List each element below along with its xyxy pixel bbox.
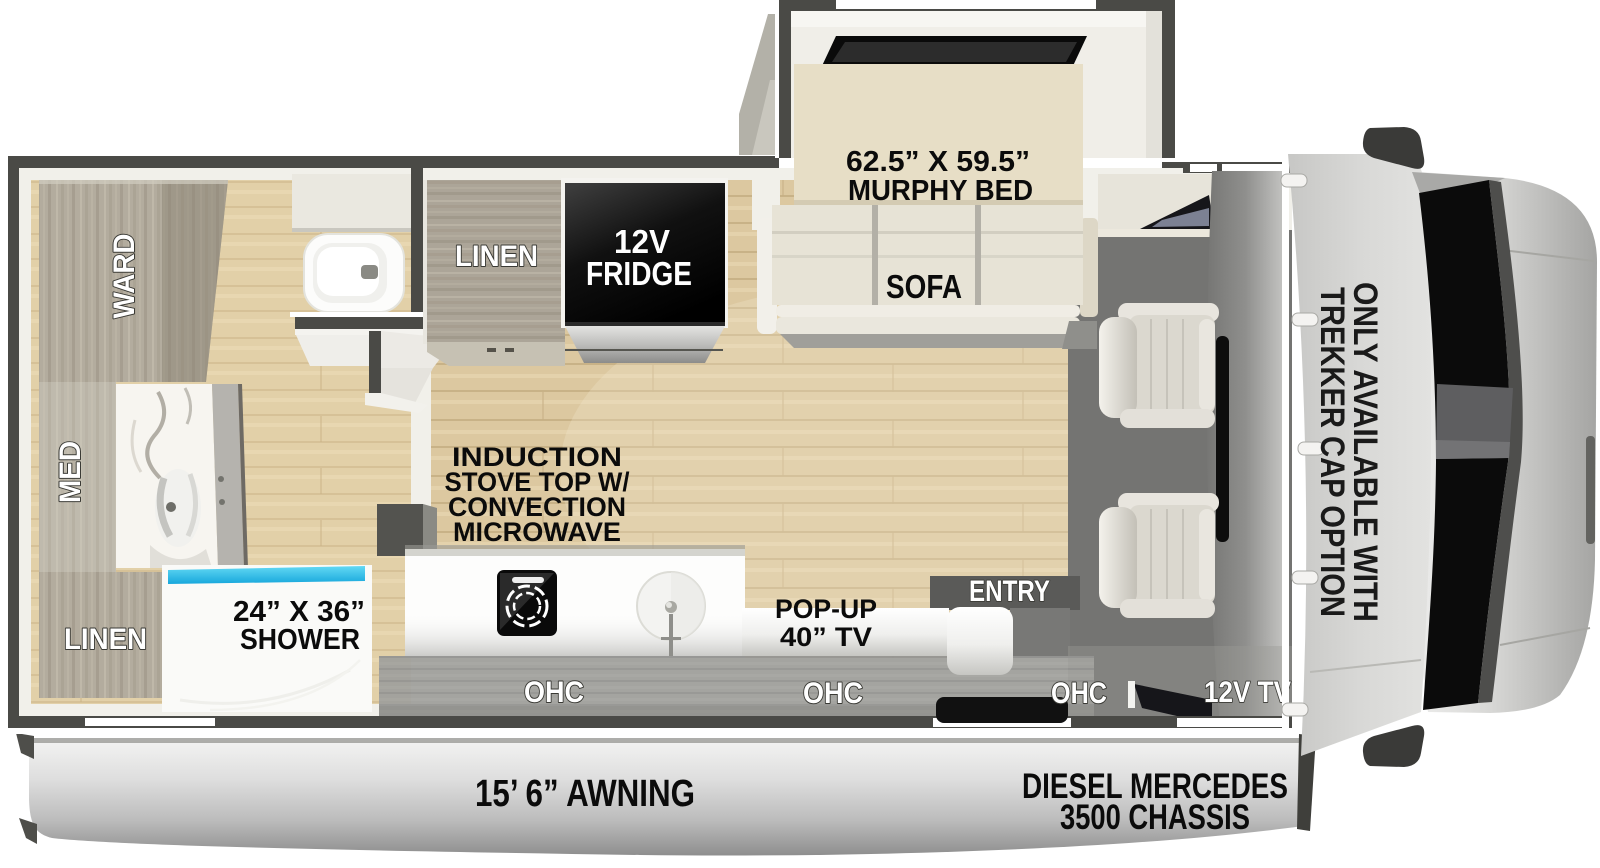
svg-text:WARD: WARD <box>108 234 141 319</box>
svg-text:15’ 6” AWNING: 15’ 6” AWNING <box>475 773 695 815</box>
svg-text:OHC: OHC <box>524 676 584 709</box>
svg-text:FRIDGE: FRIDGE <box>586 255 692 292</box>
svg-text:62.5” X 59.5”: 62.5” X 59.5” <box>846 146 1030 178</box>
svg-text:OHC: OHC <box>1051 677 1107 710</box>
svg-text:TREKKER CAP OPTION: TREKKER CAP OPTION <box>1313 287 1351 617</box>
svg-text:SOFA: SOFA <box>886 268 962 305</box>
svg-text:MURPHY BED: MURPHY BED <box>848 175 1033 207</box>
svg-text:LINEN: LINEN <box>64 623 147 656</box>
svg-text:3500 CHASSIS: 3500 CHASSIS <box>1060 798 1250 837</box>
svg-text:12V TV: 12V TV <box>1204 676 1291 709</box>
svg-text:POP-UP: POP-UP <box>775 594 877 624</box>
svg-text:MICROWAVE: MICROWAVE <box>453 517 621 547</box>
svg-text:40” TV: 40” TV <box>780 622 872 652</box>
svg-text:SHOWER: SHOWER <box>240 624 360 656</box>
svg-text:OHC: OHC <box>803 677 863 710</box>
svg-text:MED: MED <box>54 441 87 503</box>
svg-text:ENTRY: ENTRY <box>969 575 1050 608</box>
svg-text:LINEN: LINEN <box>455 240 538 273</box>
